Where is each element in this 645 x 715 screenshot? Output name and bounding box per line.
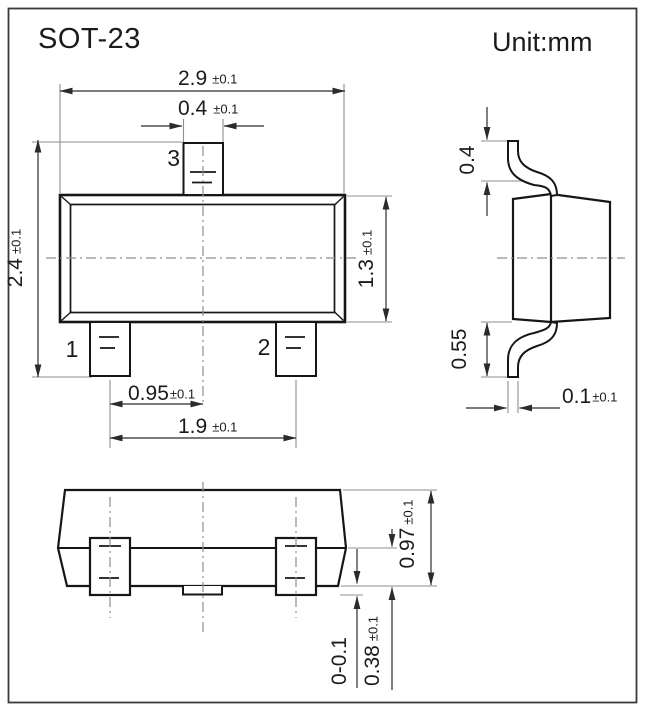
dim-lead-thickness-value: 0.1	[562, 385, 591, 408]
top-view-pin2-lead	[276, 322, 316, 376]
dim-front-body-height-tolerance: ±0.1	[401, 499, 416, 524]
top-view-pin1-lead	[90, 322, 130, 376]
dim-front-lead-height-tolerance: ±0.1	[366, 616, 381, 641]
page-title: SOT-23	[38, 23, 141, 55]
dim-lead-width-value: 0.4	[178, 97, 208, 120]
dim-lead-bottom-length: 0.55	[448, 329, 471, 370]
dim-lead-width-tolerance: ±0.1	[213, 102, 238, 117]
unit-label: Unit:mm	[492, 27, 593, 57]
dim-span-value: 1.9	[178, 415, 207, 438]
dim-span-tolerance: ±0.1	[212, 420, 237, 435]
dim-body-height-tolerance: ±0.1	[360, 230, 375, 255]
pin3-number: 3	[167, 145, 180, 171]
dim-body-height-value: 1.3	[355, 259, 378, 288]
dim-front-body-height-value: 0.97	[396, 528, 419, 569]
dim-standoff: 0-0.1	[328, 637, 351, 685]
dim-lead-top-length: 0.4	[456, 145, 479, 175]
dim-body-width-value: 2.9	[178, 67, 207, 90]
drawing-canvas: SOT-23 Unit:mm	[0, 0, 645, 715]
dim-total-height-value: 2.4	[4, 258, 27, 288]
pin2-number: 2	[258, 334, 271, 360]
dim-pitch-value: 0.95	[128, 382, 169, 405]
dim-lead-thickness-tolerance: ±0.1	[592, 390, 617, 405]
dim-front-lead-height-value: 0.38	[361, 645, 384, 686]
pin1-number: 1	[66, 336, 79, 362]
dim-body-width-tolerance: ±0.1	[212, 72, 237, 87]
dim-pitch-tolerance: ±0.1	[170, 387, 195, 402]
dim-total-height-tolerance: ±0.1	[9, 229, 24, 254]
sot23-package-drawing: SOT-23 Unit:mm	[0, 0, 645, 715]
